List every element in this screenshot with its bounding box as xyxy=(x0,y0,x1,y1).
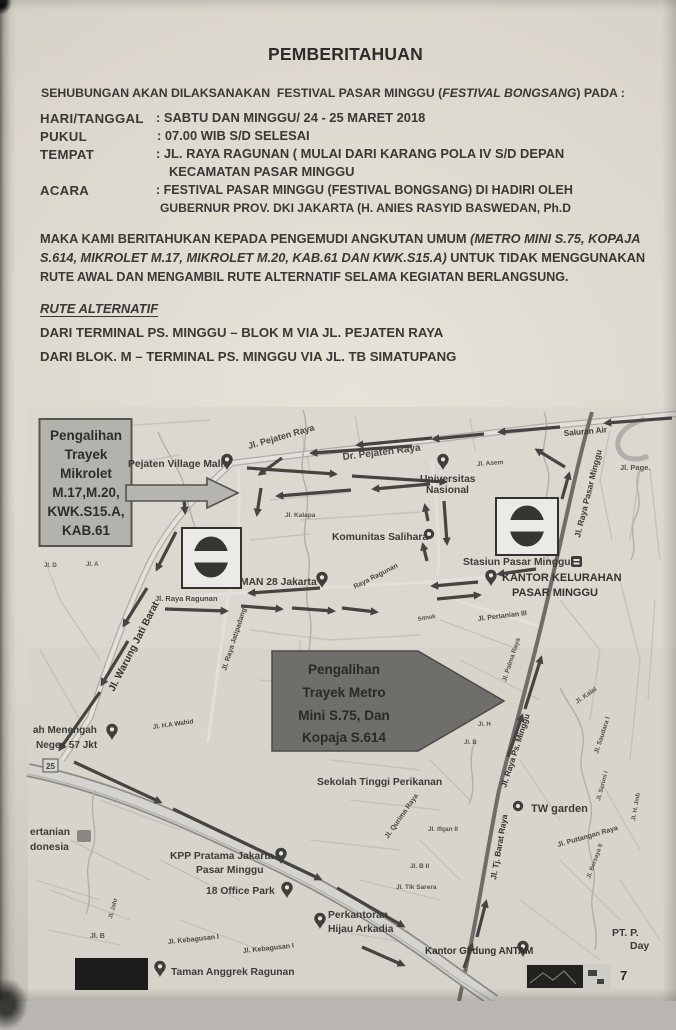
svg-text:Jl. B: Jl. B xyxy=(90,933,105,940)
svg-text:KPP Pratama Jakarta: KPP Pratama Jakarta xyxy=(170,851,274,862)
svg-text:Neges 57 Jkt: Neges 57 Jkt xyxy=(36,740,98,751)
svg-text:Day: Day xyxy=(630,940,649,952)
svg-text:TW garden: TW garden xyxy=(531,803,588,815)
svg-text:Perkantoran: Perkantoran xyxy=(328,910,388,921)
svg-text:KAB.61: KAB.61 xyxy=(62,523,111,538)
svg-text:Jl. H: Jl. H xyxy=(478,722,491,728)
svg-text:Stasiun Pasar Minggu: Stasiun Pasar Minggu xyxy=(463,557,571,568)
svg-text:Kantor Gedung ANTAM: Kantor Gedung ANTAM xyxy=(425,946,533,957)
svg-text:Jl. Tlk Sarera: Jl. Tlk Sarera xyxy=(396,884,437,891)
svg-text:25: 25 xyxy=(46,762,55,771)
svg-text:Pasar Minggu: Pasar Minggu xyxy=(196,865,264,876)
svg-text:Pengalihan: Pengalihan xyxy=(308,662,380,677)
svg-text:Jl. Raya Ragunan: Jl. Raya Ragunan xyxy=(155,594,218,603)
svg-text:KANTOR KELURAHAN: KANTOR KELURAHAN xyxy=(502,572,622,584)
svg-text:Pengalihan: Pengalihan xyxy=(50,428,122,443)
svg-text:Jl. Ifqan II: Jl. Ifqan II xyxy=(428,826,458,833)
svg-text:Hijau Arkadia: Hijau Arkadia xyxy=(328,924,394,935)
svg-text:Trayek: Trayek xyxy=(65,447,108,462)
svg-text:MAN 28 Jakarta: MAN 28 Jakarta xyxy=(240,577,317,588)
svg-text:Jl. B II: Jl. B II xyxy=(410,863,429,870)
svg-text:Universitas: Universitas xyxy=(420,474,476,485)
svg-text:donesia: donesia xyxy=(30,842,69,853)
svg-text:Mini S.75, Dan: Mini S.75, Dan xyxy=(298,708,390,723)
svg-text:Jl. A: Jl. A xyxy=(86,562,99,568)
svg-text:18 Office Park: 18 Office Park xyxy=(206,886,275,897)
svg-text:M.17,M.20,: M.17,M.20, xyxy=(52,485,120,500)
svg-text:Komunitas Salihara: Komunitas Salihara xyxy=(332,532,428,543)
svg-text:Nasional: Nasional xyxy=(426,485,469,496)
svg-text:ertanian: ertanian xyxy=(30,827,70,838)
svg-text:PT. P.: PT. P. xyxy=(612,927,639,939)
svg-text:Pejaten Village Mall: Pejaten Village Mall xyxy=(128,459,224,470)
svg-text:PASAR MINGGU: PASAR MINGGU xyxy=(512,587,598,599)
svg-text:Trayek Metro: Trayek Metro xyxy=(302,685,385,700)
svg-text:Sekolah Tinggi Perikanan: Sekolah Tinggi Perikanan xyxy=(317,777,442,788)
svg-text:Jl. D: Jl. D xyxy=(44,563,57,569)
svg-text:KWK.S15.A,: KWK.S15.A, xyxy=(47,504,124,519)
svg-text:Taman Anggrek Ragunan: Taman Anggrek Ragunan xyxy=(171,967,295,978)
svg-text:Mikrolet: Mikrolet xyxy=(60,466,112,481)
svg-text:Jl. Kalapa: Jl. Kalapa xyxy=(285,512,316,519)
svg-text:Jl. Page.: Jl. Page. xyxy=(620,463,650,472)
svg-text:Jl. B: Jl. B xyxy=(464,740,477,746)
svg-text:7: 7 xyxy=(620,968,627,983)
svg-text:Kopaja S.614: Kopaja S.614 xyxy=(302,730,387,745)
svg-text:ah Menengah: ah Menengah xyxy=(33,725,97,736)
